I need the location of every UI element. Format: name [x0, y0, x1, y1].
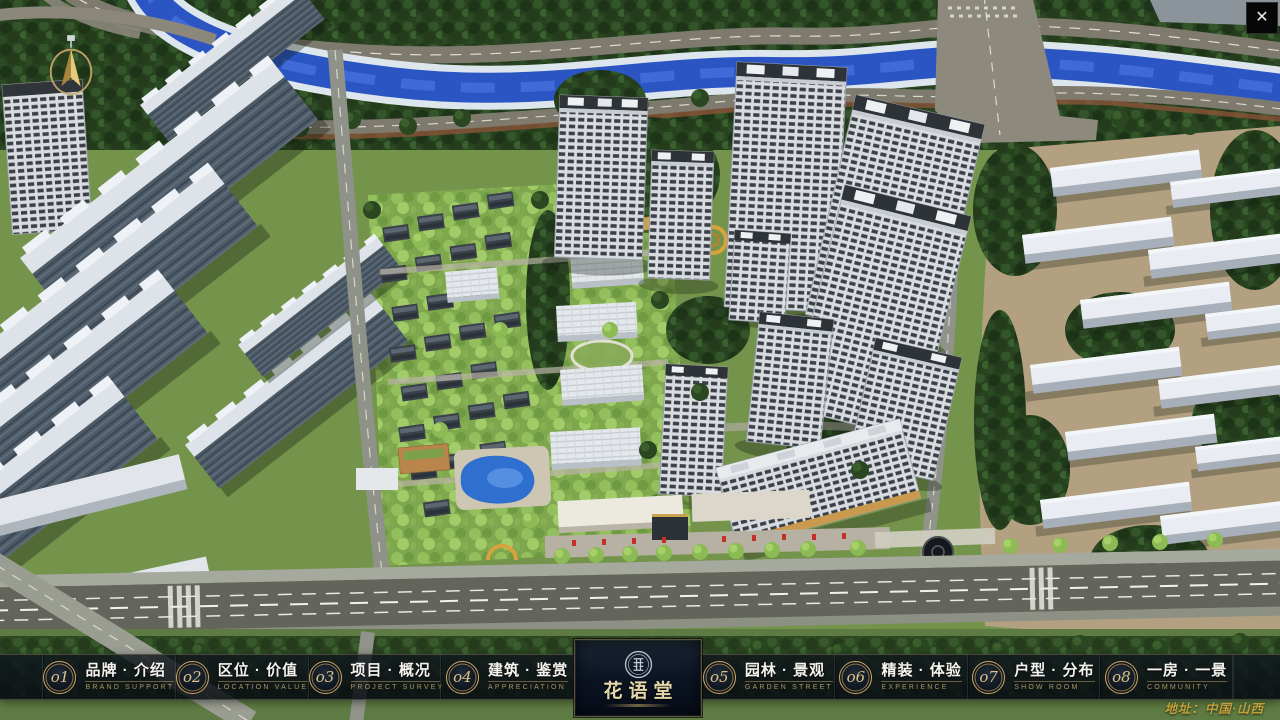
nav-item-one-house-one-view[interactable]: o8 一房 · 一景 COMMUNITY: [1100, 655, 1233, 699]
aerial-masterplan-render: [0, 0, 1280, 720]
navbar-left-spacer: [0, 655, 43, 699]
number-badge-02: o2: [176, 661, 209, 694]
address-label: 地址：中国·山西: [1164, 698, 1264, 717]
nav-subtitle: GARDEN STREET: [745, 681, 833, 691]
nav-item-decoration-experience[interactable]: o6 精装 · 体验 EXPERIENCE: [835, 655, 968, 699]
navbar-right-spacer: [1233, 655, 1280, 699]
number-badge-01: o1: [43, 661, 76, 694]
nav-title: 精装 · 体验: [881, 663, 961, 679]
compass-north-icon: [42, 34, 100, 104]
nav-item-architecture-appreciation[interactable]: o4 建筑 · 鉴赏 APPRECIATION: [441, 655, 574, 699]
number-badge-06: o6: [839, 661, 872, 694]
nav-subtitle: BRAND SUPPORT: [85, 681, 174, 691]
nav-title: 区位 · 价值: [218, 663, 298, 679]
number-badge-03: o3: [309, 661, 342, 694]
nav-item-project-overview[interactable]: o3 项目 · 概况 PROJECT SURVEY: [309, 655, 442, 699]
nav-title: 园林 · 景观: [745, 663, 825, 679]
nav-title: 项目 · 概况: [351, 663, 431, 679]
project-name: 花语堂: [597, 682, 678, 701]
number-badge-07: o7: [972, 661, 1005, 694]
nav-subtitle: EXPERIENCE: [881, 681, 961, 691]
nav-item-brand-intro[interactable]: o1 品牌 · 介绍 BRAND SUPPORT: [43, 655, 176, 699]
nav-subtitle: PROJECT SURVEY: [351, 681, 441, 691]
nav-subtitle: SHOW ROOM: [1014, 681, 1094, 691]
nav-subtitle: COMMUNITY: [1147, 681, 1227, 691]
nav-title: 户型 · 分布: [1014, 663, 1094, 679]
number-badge-04: o4: [446, 661, 479, 694]
bottom-navbar: o1 品牌 · 介绍 BRAND SUPPORT o2 区位 · 价值 LOCA…: [0, 654, 1280, 700]
nav-item-location-value[interactable]: o2 区位 · 价值 LOCATION VALUE: [176, 655, 309, 699]
nav-item-unit-distribution[interactable]: o7 户型 · 分布 SHOW ROOM: [968, 655, 1101, 699]
nav-subtitle: APPRECIATION: [488, 681, 568, 691]
nav-subtitle: LOCATION VALUE: [218, 681, 308, 691]
nav-title: 品牌 · 介绍: [85, 663, 165, 679]
project-logo-panel[interactable]: 花语堂: [574, 639, 702, 717]
nav-title: 一房 · 一景: [1147, 663, 1227, 679]
nav-title: 建筑 · 鉴赏: [488, 663, 568, 679]
seal-icon: [624, 650, 653, 679]
sales-presentation-window: ✕ o1 品牌 · 介绍 BRAND SUPPORT o2 区位 · 价值 LO…: [0, 0, 1280, 720]
number-badge-08: o8: [1105, 661, 1138, 694]
number-badge-05: o5: [703, 661, 736, 694]
close-button[interactable]: ✕: [1246, 2, 1278, 34]
close-icon: ✕: [1255, 10, 1268, 26]
nav-item-garden-landscape[interactable]: o5 园林 · 景观 GARDEN STREET: [702, 655, 835, 699]
logo-tagline-rule: [605, 704, 671, 707]
